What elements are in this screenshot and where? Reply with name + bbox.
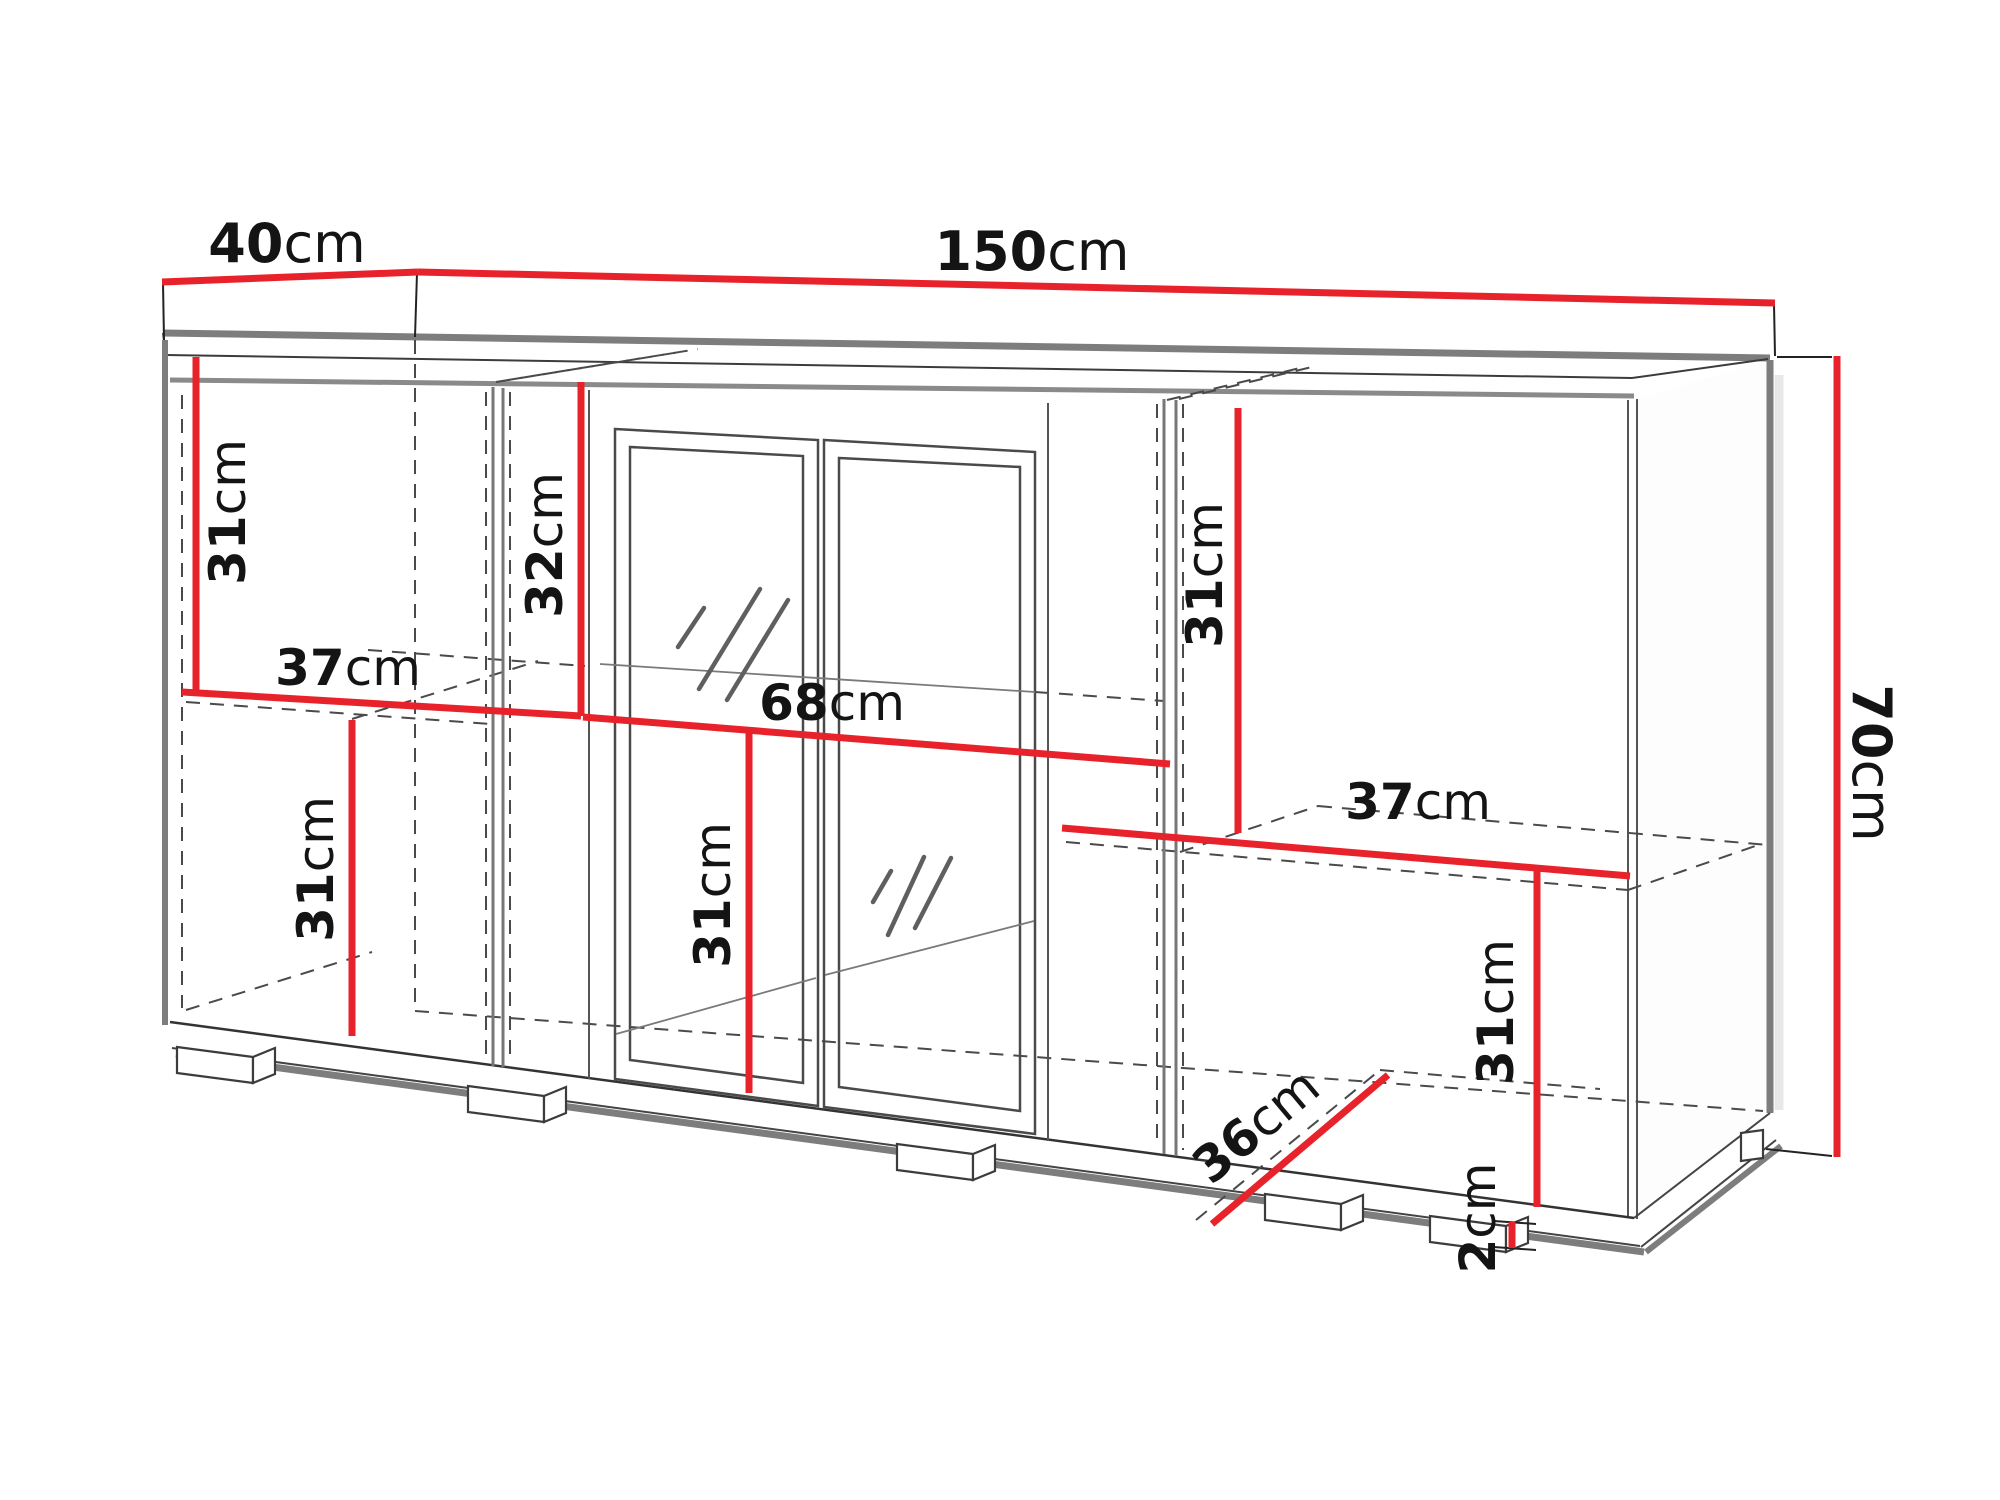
back-bottom-hidden-edge (415, 1011, 1763, 1111)
lower-center-31cm-label: 31cm (684, 822, 742, 968)
upper-right-31cm-label: 31cm (1176, 502, 1234, 648)
left-glass-door-outer-frame (615, 429, 818, 1106)
top-back-edge (163, 333, 1770, 358)
ext-40-150-junction (415, 273, 417, 337)
ext-40-left (163, 283, 164, 340)
dimension-lines (162, 272, 1837, 1248)
right-side-panel (1637, 360, 1770, 1219)
ext-150-right (1774, 304, 1775, 356)
height-70cm-label: 70cm (1841, 684, 1904, 841)
left-floor-depth-dash (186, 952, 372, 1010)
furniture-dimension-diagram: 40cm150cm70cm31cm32cm37cm68cm31cm37cm31c… (0, 0, 2000, 1500)
foot-side (253, 1048, 275, 1083)
top-slab-front-top-line (166, 355, 1632, 378)
sideboard-drawing: 40cm150cm70cm31cm32cm37cm68cm31cm37cm31c… (0, 0, 2000, 1500)
foot-front (177, 1047, 253, 1083)
glass-top-32cm-label: 32cm (516, 472, 574, 618)
width-150cm-label: 150cm (934, 220, 1129, 283)
glass-hatch-icon (678, 608, 704, 647)
foot-side (1341, 1195, 1363, 1230)
left-shelf-37cm-label: 37cm (275, 639, 421, 697)
center-shelf-back-dash (1035, 692, 1164, 701)
dividers (493, 387, 1176, 1156)
front-bottom-edge (170, 1022, 1634, 1218)
foot-front (1265, 1194, 1341, 1230)
right-glass-door-inner-frame (839, 458, 1020, 1111)
depth-40cm-label: 40cm (208, 212, 365, 275)
front-top-edge (170, 380, 1634, 396)
glass-hatch-icon (873, 871, 891, 902)
lower-left-31cm-label: 31cm (287, 796, 345, 942)
foot-side (973, 1145, 995, 1180)
cabinet-linework (163, 273, 1832, 1252)
interior-floor-line-left (616, 978, 816, 1034)
center-shelf-68cm-label: 68cm (759, 674, 905, 732)
foot-back-right (1741, 1130, 1763, 1161)
upper-left-31cm-label: 31cm (199, 439, 257, 585)
foot-front (468, 1086, 544, 1122)
lower-right-31cm-label: 31cm (1467, 939, 1525, 1085)
right-shelf-37cm-line (1062, 828, 1630, 876)
extension-lines (163, 273, 1832, 1250)
glass-doors (615, 429, 1035, 1134)
feet (177, 1047, 1763, 1252)
foot-side (544, 1087, 566, 1122)
right-shelf-37cm-label: 37cm (1345, 773, 1491, 831)
interior-floor-line-right (825, 921, 1034, 975)
left-glass-door-inner-frame (630, 447, 803, 1083)
foot-front (897, 1144, 973, 1180)
right-glass-door-outer-frame (824, 440, 1035, 1134)
foot-height-2cm-label: 2cm (1449, 1163, 1507, 1274)
